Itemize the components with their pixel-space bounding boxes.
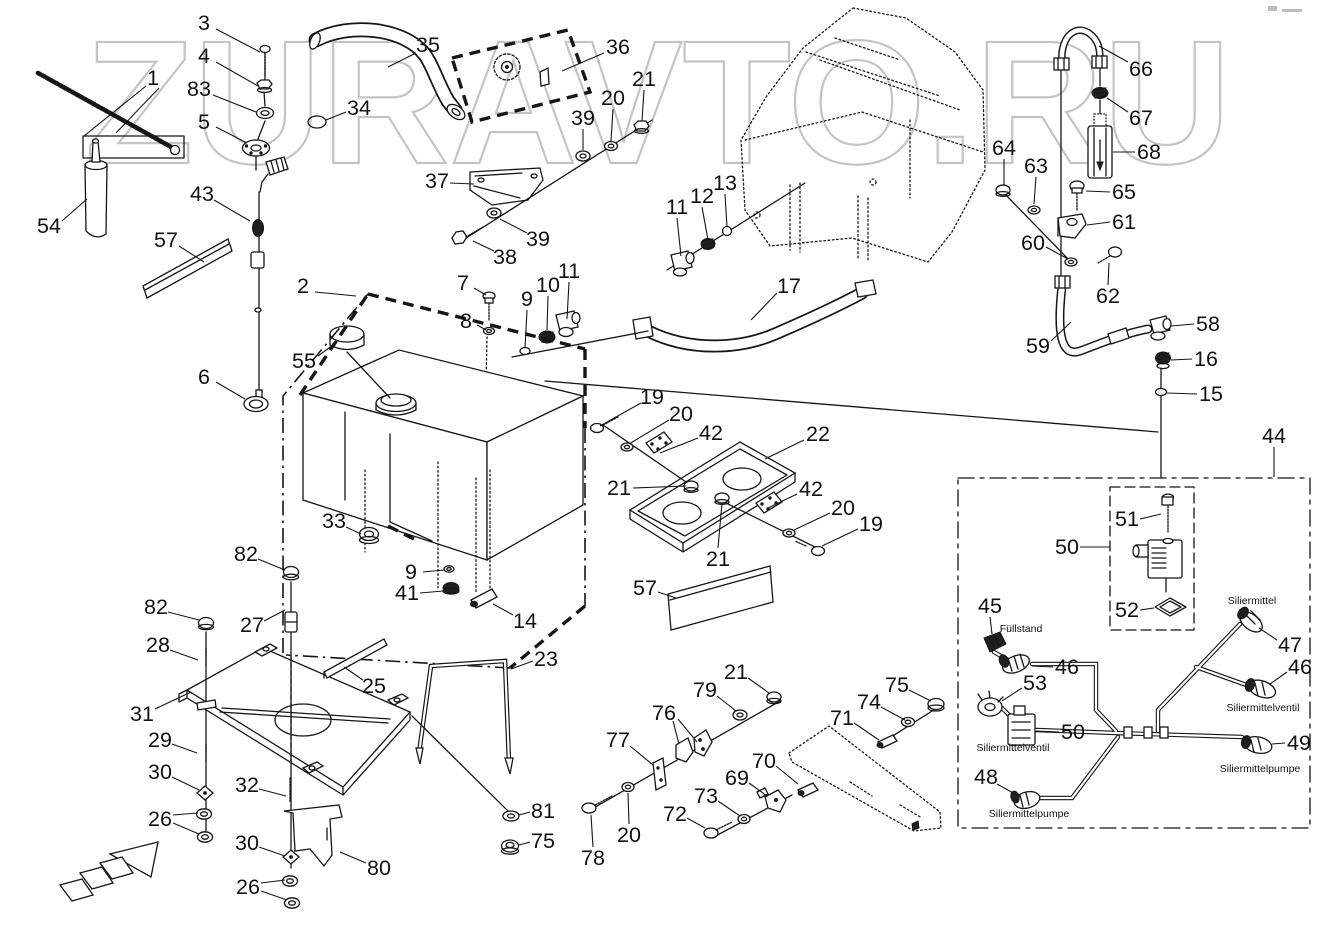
ring-13 — [723, 227, 732, 236]
label-siliermittelpumpe: Siliermittelpumpe — [1220, 763, 1301, 775]
flanged-nut-33 — [360, 528, 379, 544]
harness-wires — [994, 624, 1252, 798]
leader-line-21 — [748, 678, 769, 693]
leader-line-22 — [765, 440, 804, 459]
leader-line-15 — [1167, 393, 1197, 394]
callout-20: 20 — [601, 86, 625, 110]
callout-20: 20 — [831, 496, 855, 520]
callout-54: 54 — [37, 214, 61, 238]
leader-line-12 — [702, 207, 708, 240]
leader-line-74 — [881, 707, 905, 720]
leader-line-79 — [717, 696, 736, 711]
leader-line-72 — [687, 818, 705, 828]
callout-19: 19 — [859, 512, 883, 536]
callout-25: 25 — [362, 674, 386, 698]
callout-75: 75 — [885, 673, 909, 697]
connector-53 — [978, 691, 1003, 716]
square-washer-30a — [197, 786, 213, 800]
stud-assembly-left — [197, 618, 217, 843]
callout-2: 2 — [297, 274, 309, 298]
leader-line-33 — [346, 527, 361, 534]
washer-81 — [503, 811, 519, 821]
leader-line-39 — [500, 219, 527, 233]
callout-39: 39 — [526, 227, 550, 251]
additive-tank — [303, 326, 583, 593]
callout-55: 55 — [292, 349, 316, 373]
leader-line-58 — [1171, 324, 1194, 326]
leader-line-26 — [173, 813, 198, 815]
pin-70 — [798, 783, 818, 797]
leader-line-47 — [1259, 628, 1277, 640]
callout-61: 61 — [1112, 210, 1136, 234]
dome-nut-41 — [443, 583, 459, 595]
bolt-7 — [483, 292, 495, 320]
leader-line-26 — [261, 880, 285, 883]
washer-39 — [487, 208, 501, 218]
washer-79 — [733, 710, 747, 720]
leader-line-81 — [519, 812, 530, 815]
washer-39b — [576, 151, 590, 161]
leader-line-52 — [1140, 608, 1154, 610]
callout-34: 34 — [347, 96, 371, 120]
callout-57: 57 — [633, 576, 657, 600]
leader-line-43 — [214, 200, 250, 221]
leader-line-6 — [216, 382, 245, 399]
callout-31: 31 — [130, 702, 154, 726]
cap-nut-82a — [284, 567, 299, 580]
callout-47: 47 — [1278, 633, 1302, 657]
callout-21: 21 — [706, 547, 730, 571]
leader-line-20 — [794, 513, 830, 530]
callout-1: 1 — [147, 66, 159, 90]
callout-66: 66 — [1129, 57, 1153, 81]
callout-23: 23 — [534, 647, 558, 671]
gasket-52 — [1155, 598, 1186, 616]
bolt-78 — [582, 796, 612, 813]
callout-12: 12 — [690, 184, 714, 208]
leader-line-82 — [258, 559, 285, 570]
fitting-12 — [701, 239, 715, 250]
leader-line-29 — [172, 744, 197, 753]
label-füllstand: Füllstand — [1000, 623, 1043, 635]
leader-line-28 — [170, 650, 198, 660]
nut-75a — [502, 840, 519, 854]
callout-71: 71 — [830, 706, 854, 730]
callout-76: 76 — [652, 701, 676, 725]
callout-81: 81 — [531, 799, 555, 823]
leader-line-60 — [1046, 247, 1068, 259]
leader-line-10 — [547, 296, 548, 330]
pin-train-far-right — [877, 699, 944, 749]
leader-line-20 — [628, 793, 629, 824]
leader-line-75 — [519, 842, 530, 845]
callout-15: 15 — [1199, 382, 1223, 406]
callout-10: 10 — [536, 273, 560, 297]
callout-64: 64 — [992, 136, 1016, 160]
leader-line-19 — [600, 403, 641, 426]
label-siliermittelventil: Siliermittelventil — [977, 742, 1050, 754]
bolt-51 — [1162, 494, 1174, 532]
clamp-76 — [676, 730, 712, 762]
valve-50-harness — [1008, 706, 1035, 745]
callout-36: 36 — [606, 35, 630, 59]
leader-line-53 — [1002, 688, 1022, 701]
callout-43: 43 — [190, 182, 214, 206]
callout-70: 70 — [752, 749, 776, 773]
callout-65: 65 — [1112, 180, 1136, 204]
bolt-19a — [591, 417, 619, 433]
leader-line-80 — [340, 852, 366, 863]
leader-line-9 — [525, 310, 527, 348]
connector-46b — [1244, 677, 1278, 702]
pin-14 — [471, 589, 498, 608]
hose-17 — [633, 280, 876, 346]
leader-line-82 — [168, 612, 199, 620]
leader-line-46 — [1270, 672, 1287, 684]
elbow-58 — [1150, 316, 1171, 340]
label-siliermittelventil: Siliermittelventil — [1227, 702, 1300, 714]
callout-59: 59 — [1026, 334, 1050, 358]
callout-8: 8 — [460, 309, 472, 333]
callout-77: 77 — [606, 728, 630, 752]
callout-82: 82 — [234, 542, 258, 566]
callout-63: 63 — [1024, 154, 1048, 178]
callout-49: 49 — [1287, 731, 1311, 755]
leader-line-16 — [1171, 359, 1192, 360]
leader-line-9 — [423, 570, 444, 572]
washer-20c — [783, 529, 795, 537]
bolt-62 — [1098, 247, 1122, 263]
callout-6: 6 — [198, 365, 210, 389]
washer-26a2 — [198, 832, 213, 842]
callout-48: 48 — [974, 765, 998, 789]
leader-line-8 — [477, 325, 486, 330]
callout-21: 21 — [607, 476, 631, 500]
callout-14: 14 — [513, 609, 537, 633]
callout-20: 20 — [669, 402, 693, 426]
leader-line-26 — [173, 823, 199, 834]
callout-62: 62 — [1096, 284, 1120, 308]
leader-line-70 — [776, 766, 798, 784]
leader-line-62 — [1108, 263, 1109, 285]
leader-line-78 — [591, 815, 593, 847]
washer-9b — [444, 566, 454, 572]
hose-59-assembly — [545, 276, 1171, 477]
collar-27 — [285, 612, 297, 632]
leader-line-75 — [909, 690, 931, 701]
leader-line-48 — [997, 784, 1015, 794]
callout-33: 33 — [322, 509, 346, 533]
callout-78: 78 — [581, 846, 605, 870]
callout-11: 11 — [558, 259, 580, 283]
callout-22: 22 — [806, 422, 830, 446]
callout-27: 27 — [240, 613, 264, 637]
leader-line-41 — [420, 591, 443, 593]
leader-line-71 — [854, 723, 879, 740]
callout-52: 52 — [1115, 598, 1139, 622]
leader-line-30 — [172, 777, 199, 790]
washer-26a1 — [197, 809, 212, 819]
callout-17: 17 — [777, 274, 801, 298]
leader-line-19 — [822, 529, 858, 546]
washer-60 — [1065, 258, 1077, 266]
leader-line-31 — [155, 692, 191, 709]
washer-20 — [605, 142, 618, 151]
callout-42: 42 — [799, 477, 823, 501]
callout-46: 46 — [1055, 655, 1079, 679]
o-ring-15 — [1156, 389, 1167, 396]
callout-19: 19 — [640, 385, 664, 409]
leader-line-61 — [1087, 222, 1110, 225]
leader-line-26 — [261, 891, 287, 900]
callout-7: 7 — [457, 271, 469, 295]
leader-line-51 — [1140, 514, 1161, 519]
square-washer-30b — [283, 850, 299, 864]
washer-20d — [622, 783, 634, 792]
callout-67: 67 — [1129, 106, 1153, 130]
parts-diagram-page: ZURAVTO.RU — [0, 0, 1339, 925]
callout-38: 38 — [493, 245, 517, 269]
callout-79: 79 — [693, 678, 717, 702]
callout-68: 68 — [1137, 140, 1161, 164]
leader-line-11 — [677, 218, 681, 256]
connector-47 — [1235, 605, 1265, 636]
callout-37: 37 — [425, 169, 449, 193]
callout-57: 57 — [154, 228, 178, 252]
callout-21: 21 — [632, 67, 656, 91]
washer-9 — [520, 348, 530, 355]
callout-83: 83 — [187, 77, 211, 101]
leader-line-45 — [990, 617, 992, 634]
callout-5: 5 — [198, 110, 210, 134]
callout-21: 21 — [724, 660, 748, 684]
callout-30: 30 — [235, 831, 259, 855]
callout-26: 26 — [236, 875, 260, 899]
callout-4: 4 — [198, 44, 210, 68]
callout-16: 16 — [1194, 347, 1218, 371]
nut-82b — [199, 618, 214, 630]
leader-line-77 — [630, 746, 653, 765]
watermark-text: ZURAVTO.RU — [85, 5, 1231, 201]
leader-line-2 — [315, 292, 356, 296]
direction-arrow — [60, 842, 158, 901]
leader-line-38 — [473, 241, 494, 251]
plate-77 — [653, 758, 666, 790]
hose-nut — [1055, 276, 1070, 288]
connector-49 — [1240, 734, 1273, 755]
leader-line-49 — [1272, 743, 1285, 744]
callout-73: 73 — [694, 784, 718, 808]
bolt-19b — [795, 541, 825, 556]
tube-nut-right — [1092, 56, 1107, 68]
washer-8 — [484, 328, 495, 335]
ring-83 — [257, 108, 274, 119]
leader-line-32 — [259, 789, 286, 796]
ring-6 — [244, 397, 268, 412]
diagram-canvas: ZURAVTO.RU — [0, 0, 1339, 925]
callout-20: 20 — [617, 823, 641, 847]
callout-60: 60 — [1021, 231, 1045, 255]
callout-39: 39 — [571, 106, 595, 130]
bracket-61 — [1058, 214, 1086, 238]
callout-53: 53 — [1023, 671, 1047, 695]
leader-line-7 — [474, 288, 486, 295]
washer-20b — [621, 443, 633, 451]
fitting-16 — [1156, 352, 1171, 369]
tube-nut-left — [1054, 58, 1069, 70]
callout-75: 75 — [531, 829, 555, 853]
leader-line-17 — [751, 293, 777, 320]
bolt-38 — [452, 227, 483, 244]
leader-line-54 — [62, 199, 87, 221]
leader-line-30 — [259, 847, 285, 856]
callout-74: 74 — [857, 690, 881, 714]
washer-63 — [1028, 206, 1040, 214]
leader-line-73 — [718, 801, 740, 816]
washer-26b1 — [283, 876, 298, 886]
platform-31 — [179, 644, 410, 795]
callout-13: 13 — [713, 171, 737, 195]
callout-41: 41 — [395, 581, 419, 605]
fitting-67 — [1092, 88, 1108, 99]
callout-29: 29 — [148, 728, 172, 752]
callout-3: 3 — [198, 11, 210, 35]
callout-28: 28 — [146, 633, 170, 657]
callout-51: 51 — [1115, 507, 1139, 531]
callout-80: 80 — [367, 856, 391, 880]
pin-71 — [877, 735, 897, 748]
callout-82: 82 — [144, 595, 168, 619]
label-siliermittelpumpe: Siliermittelpumpe — [989, 808, 1070, 820]
callout-44: 44 — [1262, 424, 1286, 448]
label-siliermittel: Siliermittel — [1228, 595, 1276, 607]
machine-arm-outline-bottom — [789, 726, 941, 831]
callout-50: 50 — [1055, 535, 1079, 559]
leader-line-27 — [264, 610, 285, 621]
callout-11: 11 — [666, 195, 688, 219]
callout-9: 9 — [521, 287, 533, 311]
callout-58: 58 — [1196, 312, 1220, 336]
callout-69: 69 — [725, 766, 749, 790]
connector-45 — [984, 632, 1006, 652]
u-bracket-23 — [412, 661, 513, 813]
valve-50-inner — [1133, 539, 1182, 593]
callout-45: 45 — [978, 594, 1002, 618]
plate-57-mid — [668, 566, 773, 630]
corner-watermark-mark — [1268, 6, 1302, 12]
callout-46: 46 — [1288, 655, 1312, 679]
elbow-11 — [671, 251, 694, 276]
callout-72: 72 — [663, 802, 687, 826]
callout-26: 26 — [148, 807, 172, 831]
callout-35: 35 — [416, 33, 440, 57]
leader-line-55 — [318, 342, 337, 356]
elbow-11b — [556, 311, 580, 337]
callout-30: 30 — [148, 760, 172, 784]
callout-50: 50 — [1061, 720, 1085, 744]
leader-line-14 — [493, 604, 513, 615]
callout-42: 42 — [699, 421, 723, 445]
callout-32: 32 — [235, 773, 259, 797]
leader-line-25 — [344, 667, 363, 680]
